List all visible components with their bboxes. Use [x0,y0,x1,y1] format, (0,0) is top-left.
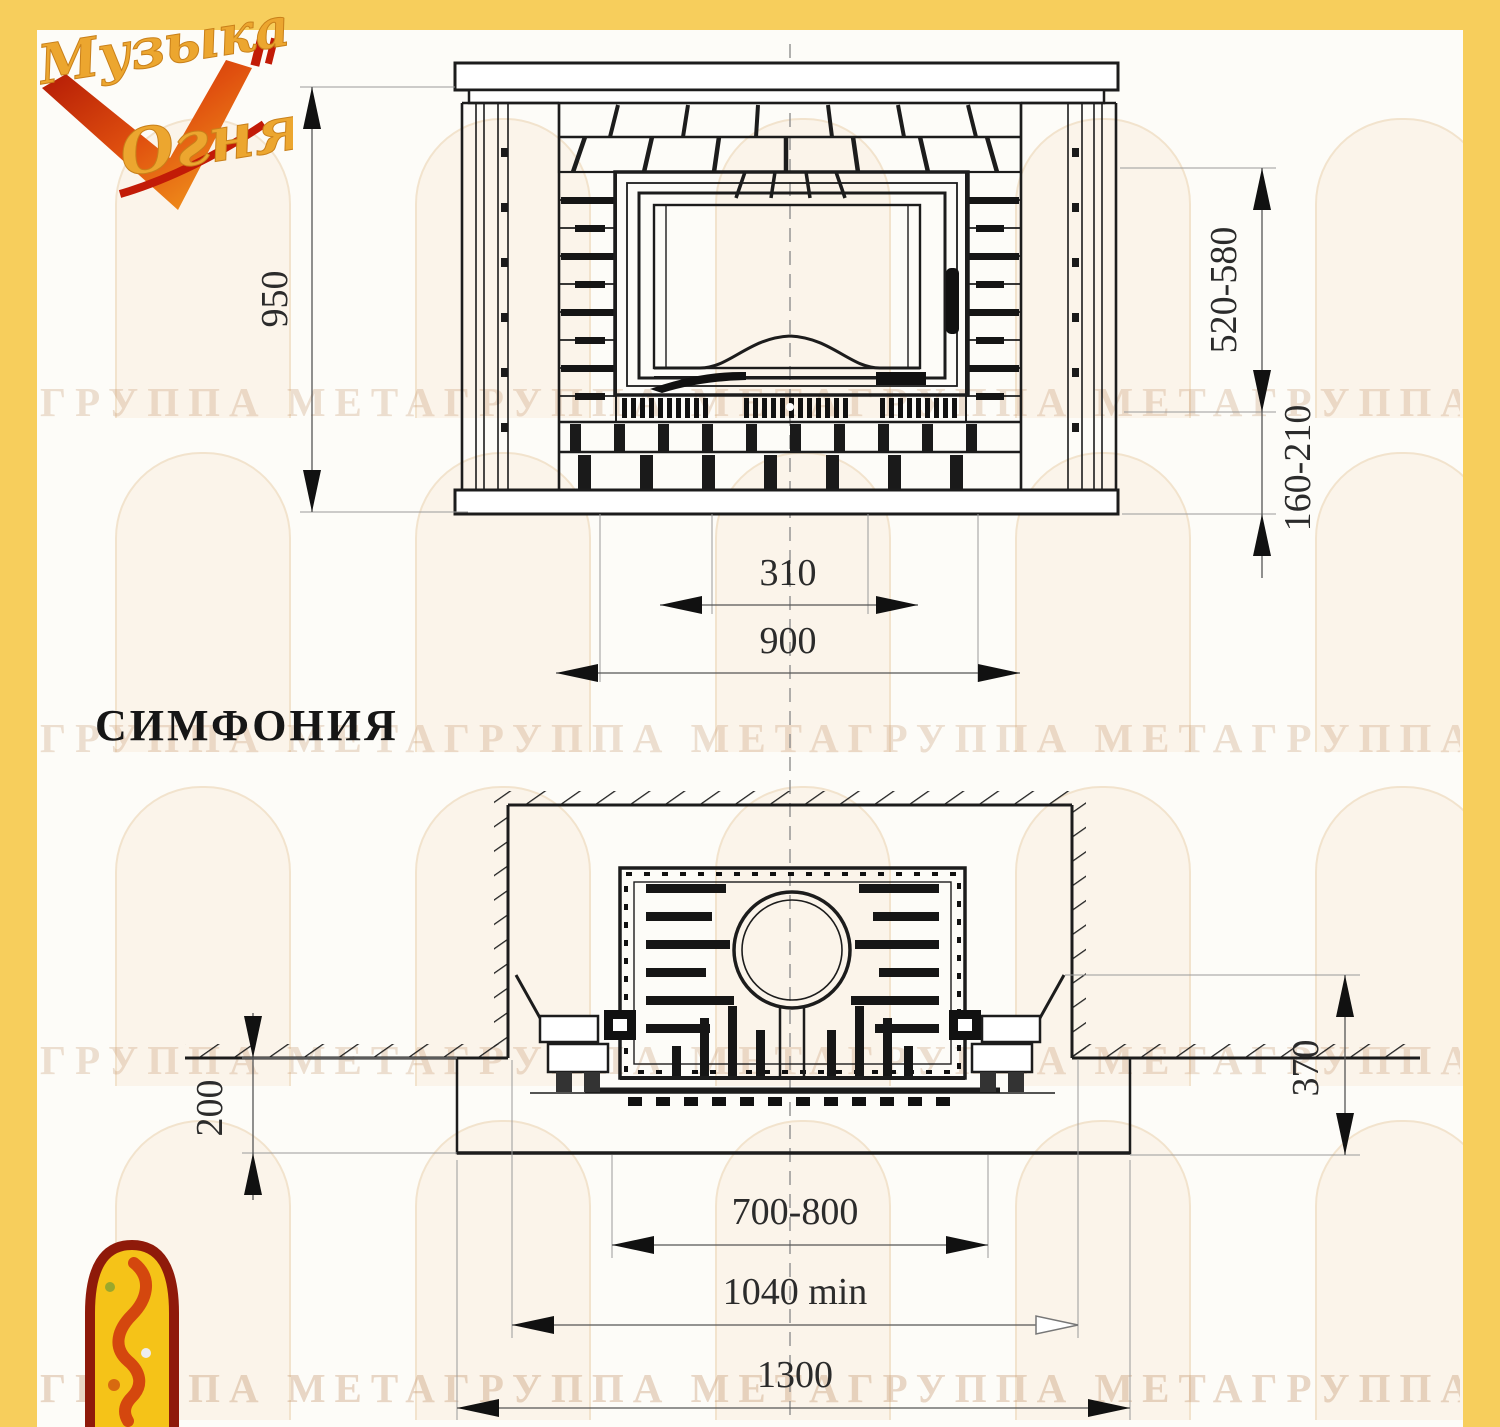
dim-plan-niche-width: 1040 min [723,1271,868,1313]
emblem-speck [141,1348,151,1358]
dim-front-height: 950 [254,271,296,328]
emblem-speck [108,1379,120,1391]
insert-ribs [646,884,939,1078]
dim-plan-insert-width: 700-800 [732,1191,859,1233]
page-title: СИМФОНИЯ [95,700,399,751]
logo-word-1: Музыка [32,8,293,97]
dim-front-hearth-height: 160-210 [1277,405,1319,532]
flame-emblem [80,1233,184,1427]
logo-word-2: Огня [115,90,293,191]
front-view-dimensions: 950 520-580 160-210 310 900 [254,87,1319,682]
dim-front-body-width: 900 [760,620,817,662]
brand-logo: Музыка Огня [28,8,293,233]
front-view [455,63,1118,514]
dim-front-opening-height: 520-580 [1203,227,1245,354]
catalog-page: ГРУППА МЕТАГРУППА МЕТАГРУППА МЕТАГРУППА … [0,0,1500,1427]
dim-plan-base-depth: 370 [1285,1040,1327,1097]
dim-front-grate-width: 310 [760,552,817,594]
emblem-speck [105,1282,115,1292]
plan-view-dimensions: 200 370 700-800 1040 min 1300 [189,975,1360,1420]
dim-plan-base-width: 1300 [757,1354,833,1396]
plan-view [185,791,1420,1153]
dim-plan-hearth-depth: 200 [189,1080,231,1137]
